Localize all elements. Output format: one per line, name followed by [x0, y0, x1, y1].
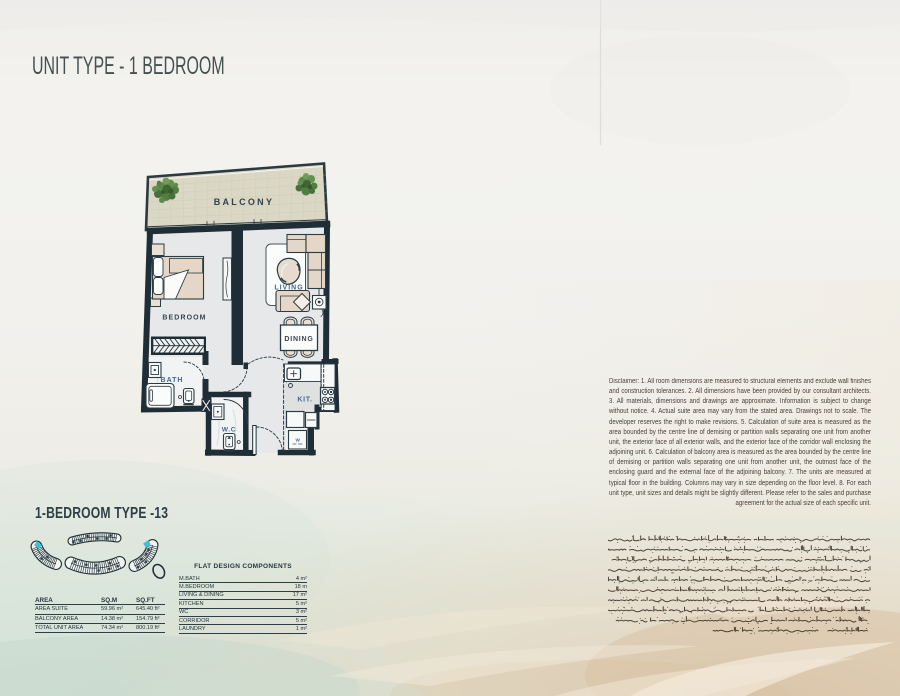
svg-text:DINING: DINING: [284, 336, 313, 343]
svg-text:W.C: W.C: [222, 427, 237, 434]
svg-text:BATH: BATH: [161, 377, 184, 384]
svg-text:W: W: [296, 438, 301, 443]
svg-text:BEDROOM: BEDROOM: [162, 315, 206, 322]
svg-text:BALCONY: BALCONY: [214, 197, 275, 207]
svg-text:KIT.: KIT.: [297, 397, 312, 404]
